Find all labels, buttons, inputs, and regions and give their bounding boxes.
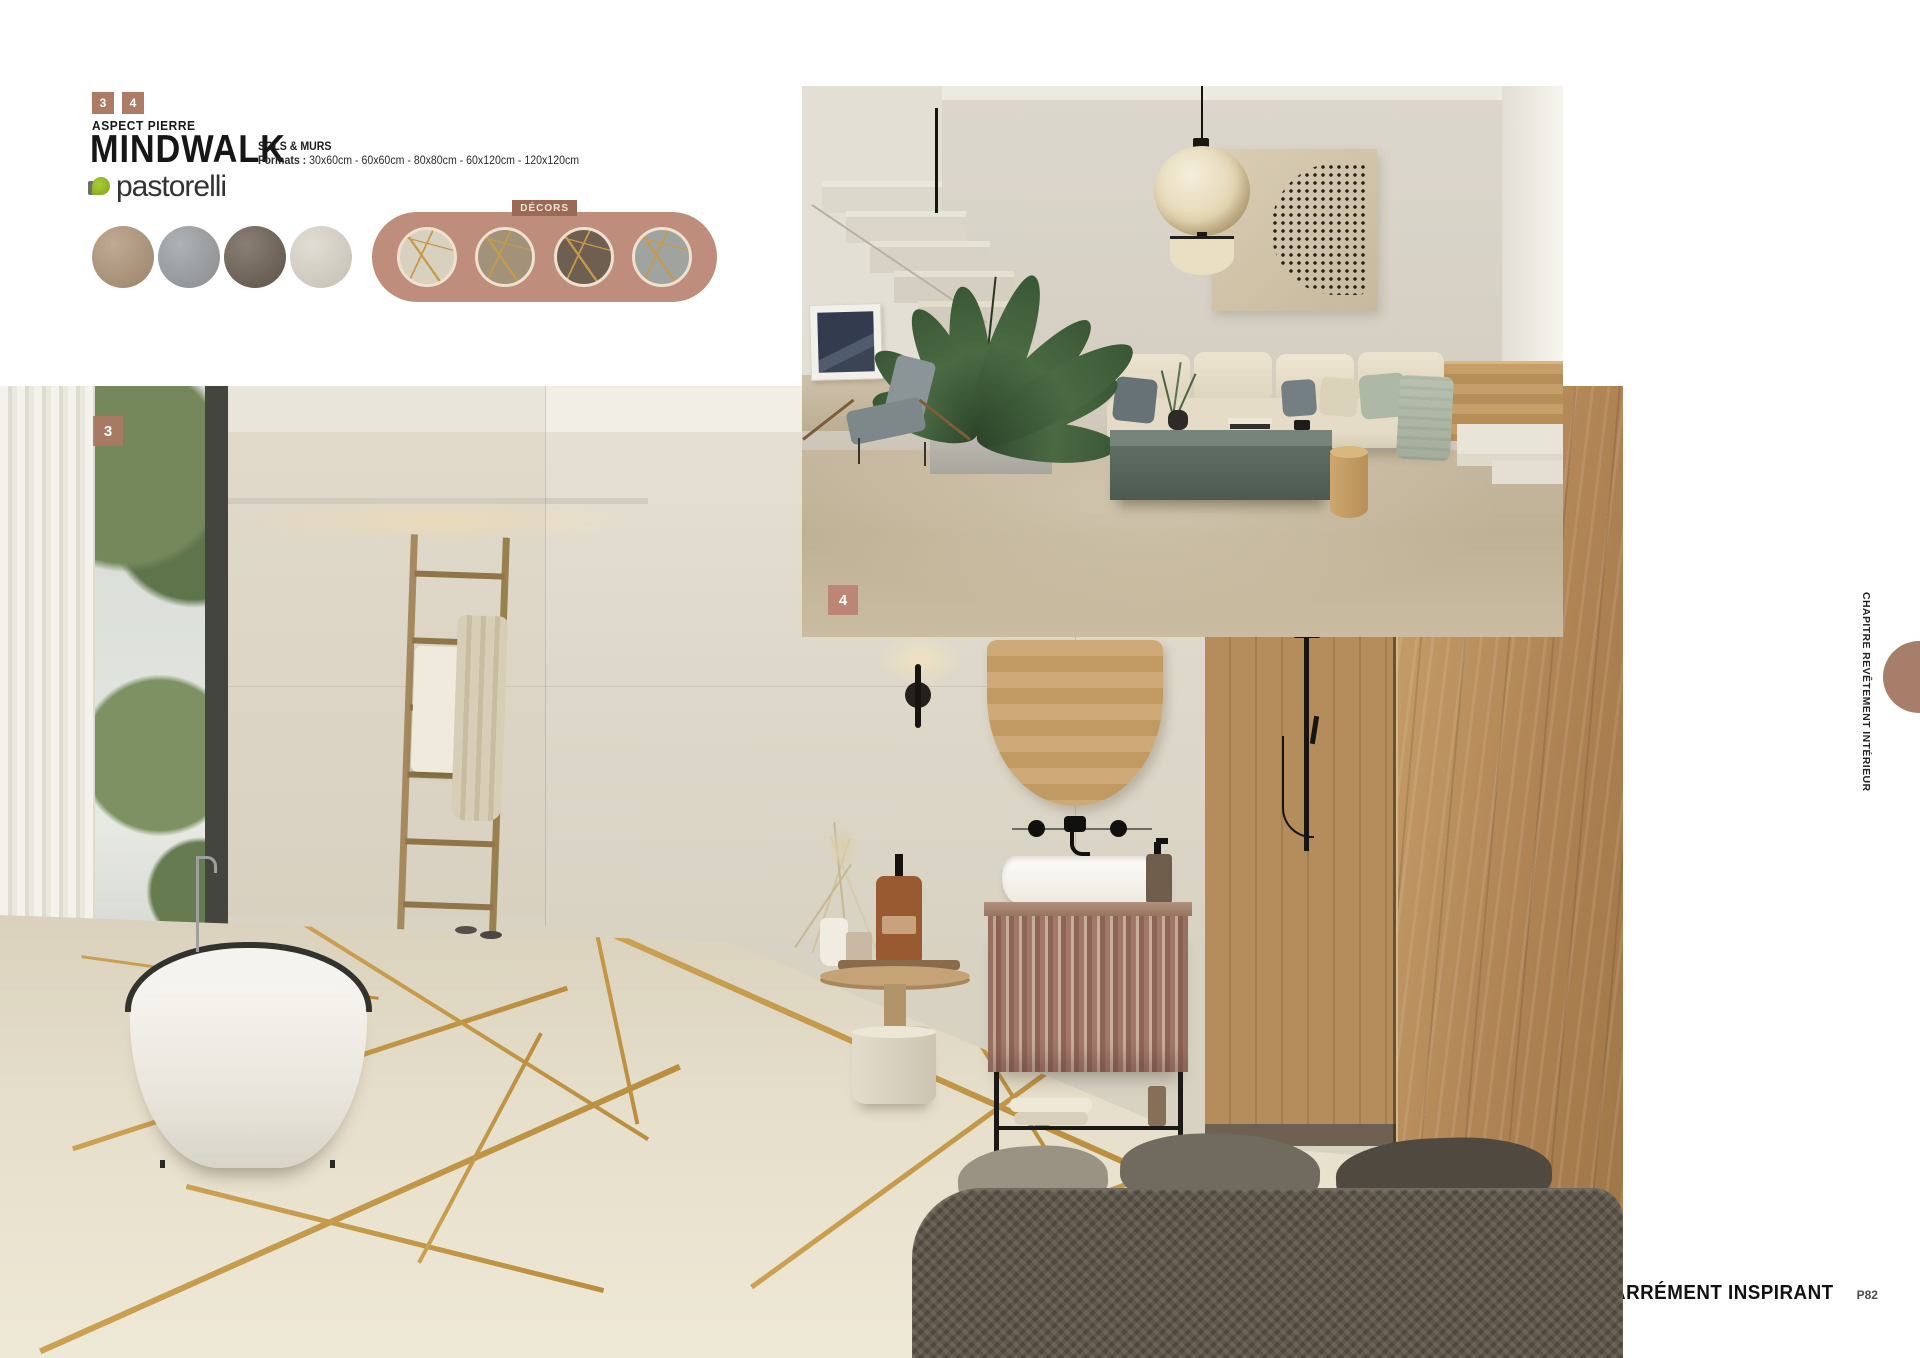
- footer: CARRÉMENT INSPIRANT P82: [1598, 1282, 1878, 1305]
- folded-towels: [1014, 1112, 1088, 1125]
- swatch-stone-grey: [158, 226, 220, 288]
- table-books: [1230, 424, 1270, 429]
- pastorelli-leaf-icon: [88, 175, 112, 199]
- wood-stool: [1330, 446, 1368, 518]
- swatch-decor-taupe-gold: [554, 227, 614, 287]
- header-ref-badge-4: 4: [122, 92, 144, 114]
- brand-name: pastorelli: [116, 170, 226, 204]
- knit-blanket-bed: [912, 1188, 1623, 1358]
- swatch-decor-white-gold: [397, 227, 457, 287]
- wall-light-bar: [935, 108, 938, 213]
- tile-joint-vertical: [545, 386, 546, 926]
- vanity-counter: [984, 902, 1192, 916]
- throw-blanket: [1396, 375, 1454, 462]
- table-vase: [1168, 410, 1188, 430]
- page-number: P82: [1857, 1288, 1878, 1302]
- photo-ref-badge: 4: [828, 585, 858, 615]
- pendant-lamp: [1148, 86, 1260, 272]
- window-light: [1502, 86, 1563, 376]
- folded-towels: [1010, 1098, 1092, 1112]
- white-step: [1492, 460, 1563, 484]
- swatch-stone-white: [290, 226, 352, 288]
- brand-logo: pastorelli: [88, 170, 226, 204]
- swatch-decor-grey-gold: [632, 227, 692, 287]
- photo-living-room: 4: [802, 86, 1563, 637]
- photo-ref-badge: 3: [93, 416, 123, 446]
- dot-pattern: [1271, 163, 1367, 295]
- slippers: [480, 931, 502, 939]
- collection-name: MINDWALK: [90, 128, 286, 172]
- camera: [1294, 420, 1310, 430]
- chapter-tab: [1883, 641, 1920, 713]
- vase: [820, 918, 848, 966]
- wall-faucet: [1012, 814, 1152, 860]
- usage-label: SOLS & MURS: [258, 141, 331, 153]
- coffee-table: [1110, 412, 1332, 500]
- towel-ladder: [397, 534, 515, 932]
- formats-line: Formats : 30x60cm - 60x60cm - 80x80cm - …: [258, 155, 579, 167]
- amber-bottle: [876, 854, 922, 966]
- soap-dispenser: [1146, 838, 1172, 904]
- decors-group: DÉCORS: [372, 212, 717, 302]
- beige-robe: [451, 615, 508, 822]
- swatch-stone-beige: [92, 226, 154, 288]
- publisher-logo: CARRÉMENT INSPIRANT: [1598, 1282, 1834, 1305]
- header-ref-badge-3: 3: [92, 92, 114, 114]
- swatch-stone-taupe: [224, 226, 286, 288]
- formats-label: Formats :: [258, 155, 306, 167]
- catalog-page: 3 4 ASPECT PIERRE MINDWALK SOLS & MURS F…: [0, 0, 1920, 1358]
- bathtub-faucet: [196, 856, 226, 956]
- stool: [852, 1026, 936, 1104]
- swatch-decor-beige-gold: [475, 227, 535, 287]
- shelf-bottle: [1148, 1086, 1166, 1126]
- wall-sconce: [903, 664, 933, 746]
- shower-set: [1288, 628, 1328, 858]
- formats-value: 30x60cm - 60x60cm - 80x80cm - 60x120cm -…: [309, 155, 579, 167]
- decors-badge: DÉCORS: [512, 200, 577, 216]
- fluted-vanity: [988, 916, 1188, 1072]
- lounge-chair: [832, 354, 952, 466]
- color-swatch-row: DÉCORS: [92, 222, 752, 314]
- bathtub: [125, 942, 372, 1168]
- slippers: [455, 926, 477, 934]
- chapter-label: CHAPITRE REVÊTEMENT INTÉRIEUR: [1860, 592, 1872, 762]
